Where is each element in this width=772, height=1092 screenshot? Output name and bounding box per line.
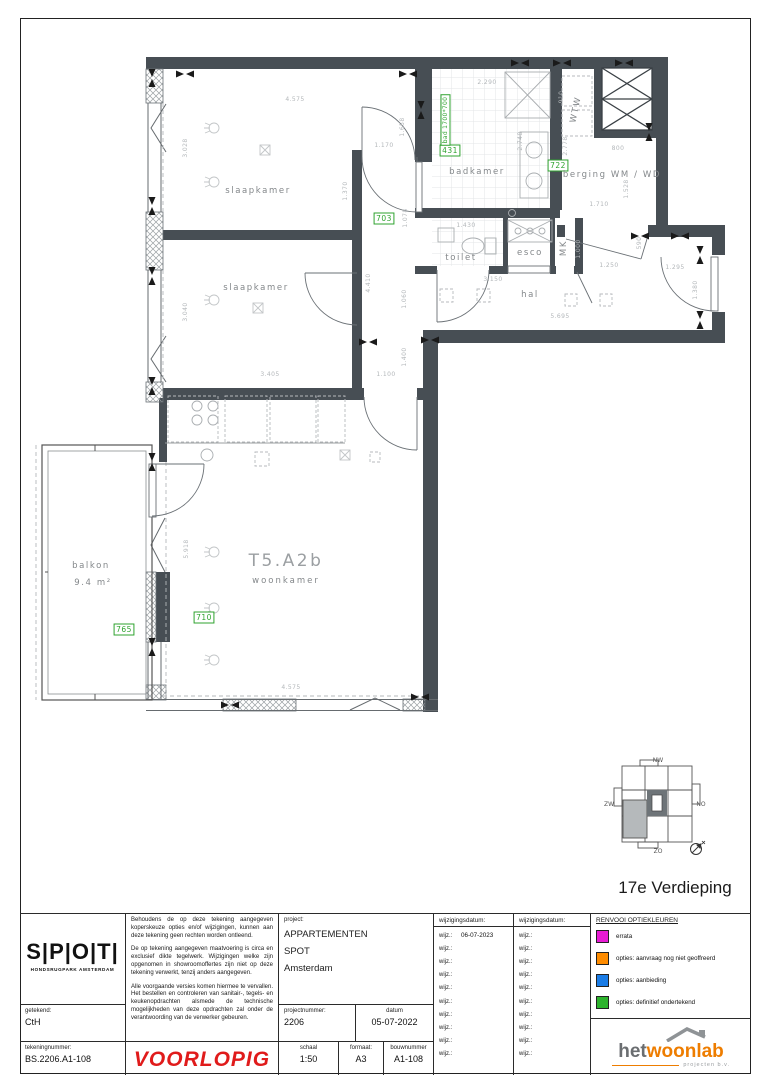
room-label-wtw: WTW [568,95,583,123]
dim-text: 910 [558,91,565,104]
wijziging-row-label: wijz.: [519,946,541,952]
wijzigingen-column-1: wijzigingsdatum: wijz.:06-07-2023wijz.:w… [433,914,513,1075]
dim-text: 1.250 [599,262,618,269]
dim-text: 1.060 [401,289,408,308]
option-765: 765 [116,625,132,634]
wijziging-row-label: wijz.: [439,946,461,952]
opening-marker [399,71,417,78]
option-703: 703 [376,214,392,223]
legend-item: opties: definitief ondertekend [596,996,746,1009]
voorlopig-cell: VOORLOPIG [125,1041,278,1075]
project-label: project: [284,917,428,923]
wijziging-row: wijz.: [519,1021,585,1034]
wijziging-row-label: wijz.: [519,933,541,939]
wijziging-row-label: wijz.: [519,1012,541,1018]
bouwnummer-label: bouwnummer [389,1045,428,1051]
wall-light [204,655,219,665]
dim-text: 4.575 [285,96,304,103]
wijziging-row-label: wijz.: [439,985,461,991]
dim-text: 1.710 [589,201,608,208]
wijziging-row: wijz.: [519,995,585,1008]
getekend-cell: getekend: CtH [20,1004,125,1041]
dim-text: 1.400 [401,347,408,366]
drawing-sheet: 703431722765710bad 1700*700 slaapkamersl… [0,0,772,1092]
dim-text: 1.430 [456,222,475,229]
disclaimer-cell: Behoudens de op deze tekening aangegeven… [125,914,278,1041]
wijziging-row-label: wijz.: [439,1038,461,1044]
dim-text: 3.405 [260,371,279,378]
wijziging-row-label: wijz.: [519,959,541,965]
ceiling-point [340,450,350,460]
legend-color-swatch [596,952,609,965]
title-block: S|P|O|T| HONDSRUGPARK AMSTERDAM getekend… [20,913,751,1074]
ceiling-point [260,145,270,155]
dim-text: 1.380 [692,280,699,299]
wijzigingsdatum-header: wijzigingsdatum: [434,914,513,927]
hetwoonlab-underline [612,1065,679,1066]
room-label-balkon: balkon [72,561,110,571]
project-city: Amsterdam [284,963,428,974]
wijziging-row: wijz.: [439,1008,508,1021]
dim-text: 1.295 [665,264,684,271]
wijziging-row: wijz.: [519,969,585,982]
wijziging-row: wijz.: [519,1048,585,1061]
wijziging-row: wijz.: [519,1035,585,1048]
wijziging-row-label: wijz.: [519,1025,541,1031]
wall-light [204,177,219,187]
wijziging-row-label: wijz.: [519,1038,541,1044]
disclaimer-paragraph: Alle voorgaande versies komen hiermee te… [131,984,273,1023]
wijziging-row: wijz.: [439,1048,508,1061]
schaal-label: schaal [284,1045,333,1051]
room-label-mk: MK [559,240,569,256]
wijziging-row: wijz.: [439,982,508,995]
wijziging-row-label: wijz.: [519,972,541,978]
wijziging-row: wijz.: [439,995,508,1008]
datum-value: 05-07-2022 [361,1017,428,1027]
wijziging-row-label: wijz.: [439,972,461,978]
formaat-label: formaat: [344,1045,378,1051]
hetwoonlab-cell: hetwoonlab projecten b.v. [590,1018,751,1075]
wijziging-row: wijz.: [439,969,508,982]
dim-text: 3.150 [483,276,502,283]
legend-color-swatch [596,996,609,1009]
room-label-slaapkamer-1: slaapkamer [225,186,291,196]
dim-text: 2.778 [562,136,569,155]
wijziging-row: wijz.: [439,1021,508,1034]
projectnummer-cell: projectnummer: 2206 [278,1004,355,1041]
projectnummer-value: 2206 [284,1017,350,1027]
shaft [602,68,652,130]
wall-light [204,547,219,557]
voorlopig-stamp: VOORLOPIG [131,1045,273,1075]
dim-text: 3.040 [182,302,189,321]
balkon-area-label: 9.4 m² [74,578,112,588]
windows [146,103,438,711]
bouwnummer-cell: bouwnummer A1-108 [383,1041,433,1075]
project-name: APPARTEMENTEN [284,929,428,940]
highlighted-unit [623,800,647,838]
renvooi-title: RENVOOI OPTIEKLEUREN [596,917,746,924]
unit-code-label: T5.A2b [248,551,324,571]
key-plan [614,760,705,855]
renvooi-cell: RENVOOI OPTIEKLEUREN errataopties: aanvr… [590,914,751,1018]
option-722: 722 [550,161,566,170]
datum-label: datum [361,1008,428,1014]
room-label-woonkamer: woonkamer [252,576,320,586]
schaal-value: 1:50 [284,1054,333,1064]
tekeningnummer-cell: tekeningnummer: BS.2206.A1-108 [20,1041,125,1075]
kp-text: NW [653,757,663,764]
wijziging-row: wijz.: [439,942,508,955]
projectnummer-label: projectnummer: [284,1008,350,1014]
project-cell: project: APPARTEMENTEN SPOT Amsterdam [278,914,433,1004]
wall-light [204,123,219,133]
wijziging-row: wijz.: [519,942,585,955]
kp-text: NO [696,801,705,808]
dim-text: 1.170 [374,142,393,149]
wijziging-row-value: 06-07-2023 [461,932,493,939]
wijziging-row-label: wijz.: [439,1012,461,1018]
logo-cell: S|P|O|T| HONDSRUGPARK AMSTERDAM [20,914,125,1004]
datum-cell: datum 05-07-2022 [355,1004,433,1041]
dim-text: 2.290 [477,79,496,86]
north-compass [691,841,706,855]
wijziging-row: wijz.: [519,929,585,942]
legend-color-swatch [596,974,609,987]
option-710: 710 [196,613,212,622]
room-label-badkamer: badkamer [449,167,505,177]
tekeningnummer-label: tekeningnummer: [25,1045,120,1051]
disclaimer-paragraph: De op tekening aangegeven maatvoering is… [131,946,273,977]
legend-label: opties: aanvraag nog niet geoffreerd [616,955,715,962]
project-name2: SPOT [284,946,428,957]
floor-title: 17e Verdieping [600,878,750,898]
wijzigingsdatum-header: wijzigingsdatum: [514,914,590,927]
legend-label: errata [616,933,632,940]
legend-color-swatch [596,930,609,943]
floor-plan: 703431722765710bad 1700*700 slaapkamersl… [0,0,772,912]
option-bad-1700x700: bad 1700*700 [442,97,449,144]
dim-text: 3.028 [182,138,189,157]
dim-text: 1.000 [575,239,582,258]
wijziging-row: wijz.: [439,955,508,968]
wijziging-row-label: wijz.: [519,999,541,1005]
bouwnummer-value: A1-108 [389,1054,428,1064]
hetwoonlab-logo-woonlab: woonlab [647,1041,724,1062]
wall-light [204,295,219,305]
legend-label: opties: definitief ondertekend [616,999,695,1006]
dim-text: 5.695 [550,313,569,320]
kp-text: ZW [604,801,614,808]
spot-logo: S|P|O|T| [25,939,120,965]
schaal-cell: schaal 1:50 [278,1041,338,1075]
tekeningnummer-value: BS.2206.A1-108 [25,1054,120,1064]
hetwoonlab-logo-het: het [618,1041,647,1062]
wijziging-row-label: wijz.: [519,985,541,991]
dim-text: 590 [636,237,643,250]
wijziging-row: wijz.: [519,1008,585,1021]
wijziging-row-label: wijz.: [439,999,461,1005]
dim-text: 1.370 [342,181,349,200]
wijziging-row-label: wijz.: [439,1025,461,1031]
ceiling-point [253,303,263,313]
getekend-label: getekend: [25,1008,120,1014]
hood [201,449,213,461]
balkon-railing [42,445,152,700]
getekend-value: CtH [25,1017,120,1027]
dim-text: 1.528 [623,179,630,198]
formaat-value: A3 [344,1054,378,1064]
room-label-berging: berging WM / WD [563,170,661,180]
hetwoonlab-roof-icon [663,1026,709,1042]
formaat-cell: formaat: A3 [338,1041,383,1075]
spot-logo-subtitle: HONDSRUGPARK AMSTERDAM [25,967,120,972]
dim-text: 1.100 [376,371,395,378]
dim-text: 2.748 [517,131,524,150]
disclaimer-paragraph: Behoudens de op deze tekening aangegeven… [131,917,273,940]
dim-text: 800 [612,145,625,152]
legend-item: opties: aanbieding [596,974,746,987]
legend-item: opties: aanvraag nog niet geoffreerd [596,952,746,965]
wijziging-row: wijz.: [519,955,585,968]
opening-marker [176,71,194,78]
wijziging-row: wijz.: [439,1035,508,1048]
legend-item: errata [596,930,746,943]
wijziging-row-label: wijz.: [439,959,461,965]
dim-text: 5.918 [183,539,190,558]
room-label-hal: hal [521,290,539,300]
legend-label: opties: aanbieding [616,977,666,984]
room-label-slaapkamer-2: slaapkamer [223,283,289,293]
hetwoonlab-subtitle: projecten b.v. [683,1062,730,1068]
dim-text: 4.410 [365,273,372,292]
wijzigingen-column-2: wijzigingsdatum: wijz.:wijz.:wijz.:wijz.… [513,914,590,1075]
room-label-esco: esco [517,248,543,258]
wijziging-row-label: wijz.: [519,1051,541,1057]
option-431: 431 [442,146,458,155]
wijziging-row: wijz.: [519,982,585,995]
opening-marker [697,311,704,329]
wijziging-row-label: wijz.: [439,933,461,939]
dim-text: 1.658 [399,117,406,136]
wijziging-row: wijz.:06-07-2023 [439,929,508,942]
wijziging-row-label: wijz.: [439,1051,461,1057]
dim-text: 4.575 [281,684,300,691]
kp-text: ZO [654,848,663,855]
hetwoonlab-logo: hetwoonlab [618,1042,724,1061]
dim-text: 1.078 [402,208,409,227]
room-label-toilet: toilet [445,253,476,263]
opening-marker [697,246,704,264]
